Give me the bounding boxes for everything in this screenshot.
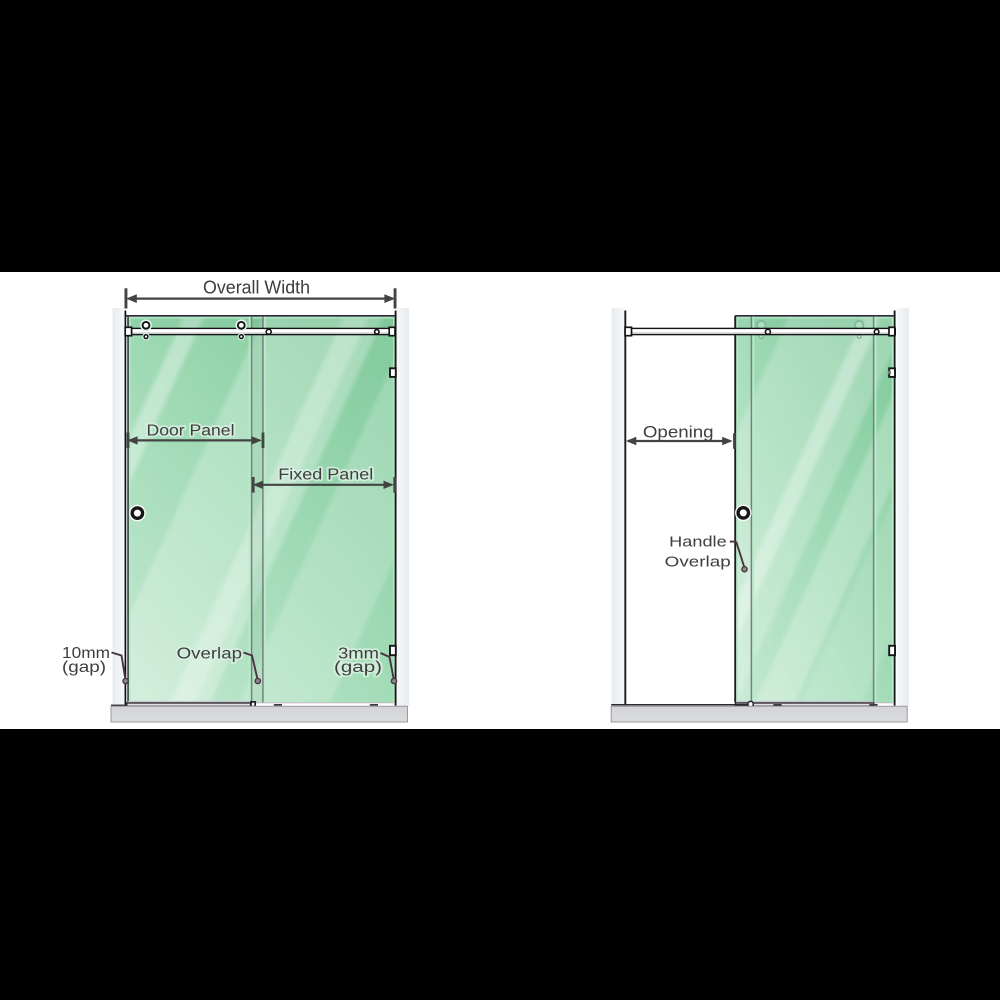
svg-text:Handle: Handle: [669, 535, 727, 551]
svg-text:(gap): (gap): [334, 659, 382, 676]
svg-text:Opening: Opening: [643, 422, 714, 441]
svg-text:Fixed Panel: Fixed Panel: [278, 467, 373, 484]
svg-text:Overall Width: Overall Width: [203, 278, 310, 298]
svg-text:Overlap: Overlap: [177, 645, 242, 662]
svg-text:(gap): (gap): [62, 659, 106, 676]
svg-text:Door Panel: Door Panel: [147, 423, 235, 440]
svg-text:Overlap: Overlap: [665, 554, 731, 570]
